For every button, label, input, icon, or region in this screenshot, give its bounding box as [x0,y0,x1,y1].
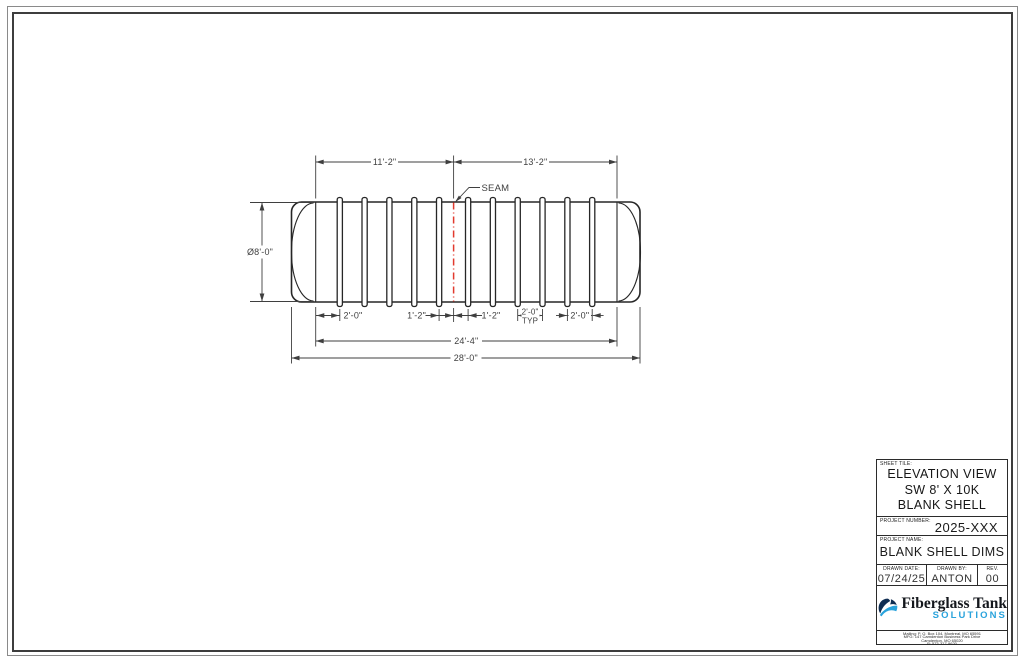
address-line-4: P: 573-317-9620 [877,642,1007,645]
drawn-by-cell: DRAWN BY: ANTON [927,565,978,585]
sheet-title-line-1: ELEVATION VIEW [877,467,1007,483]
sheet-title-section: SHEET TILE: ELEVATION VIEW SW 8' X 10K B… [877,460,1007,517]
rev-value: 00 [986,573,999,585]
dim-top-right: 13'-2" [523,157,547,167]
drawn-date-value: 07/24/25 [878,573,926,585]
rib [437,198,442,307]
rib [337,198,342,307]
rib [412,198,417,307]
company-address: Mailing: P. O. Box 104, Montreal, MO 655… [877,631,1007,645]
dim-seam-right: 1'-2" [482,311,501,321]
rib [540,198,545,307]
title-block: SHEET TILE: ELEVATION VIEW SW 8' X 10K B… [876,459,1008,645]
project-number-section: PROJECT NUMBER: 2025-XXX [877,517,1007,536]
sheet-title-label: SHEET TILE: [877,460,1007,467]
tank-ribs [337,198,595,307]
dim-texts: 11'-2" 13'-2" SEAM Ø8'-0" 2'-0" 1'-2" 1'… [247,157,589,363]
project-number-value: 2025-XXX [935,520,998,535]
drawn-date-label: DRAWN DATE: [883,565,920,572]
sheet-title-line-3: BLANK SHELL [877,498,1007,514]
project-name-label: PROJECT NAME: [877,536,1007,543]
rev-cell: REV. 00 [978,565,1007,585]
dim-top-left: 11'-2" [373,157,396,167]
dim-diameter: Ø8'-0" [247,247,273,257]
logo-company-name: Fiberglass Tank [901,596,1007,611]
company-logo: Fiberglass Tank SOLUTIONS [877,586,1007,631]
rib [590,198,595,307]
dimensions [250,156,640,364]
sheet-title-line-2: SW 8' X 10K [877,483,1007,499]
rib [490,198,495,307]
rib [362,198,367,307]
right-head-arc [619,203,641,301]
rev-label: REV. [986,565,998,572]
fiberglass-tank-logo-icon [877,597,898,619]
rib [466,198,471,307]
rib [387,198,392,307]
drawing-sheet: 11'-2" 13'-2" SEAM Ø8'-0" 2'-0" 1'-2" 1'… [0,0,1024,663]
dim-rib-spacing: 2'-0" [522,308,539,317]
dim-seam-left: 1'-2" [407,311,426,321]
left-head-arc [292,203,314,301]
seam-label: SEAM [482,183,510,194]
project-name-section: PROJECT NAME: BLANK SHELL DIMS [877,536,1007,565]
drawn-by-label: DRAWN BY: [937,565,967,572]
logo-company-sub: SOLUTIONS [901,611,1007,621]
drawn-date-cell: DRAWN DATE: 07/24/25 [877,565,927,585]
project-name-value: BLANK SHELL DIMS [877,545,1007,559]
drawn-by-value: ANTON [931,573,972,585]
tank-elevation-drawing: 11'-2" 13'-2" SEAM Ø8'-0" 2'-0" 1'-2" 1'… [0,0,1024,663]
rib [515,198,520,307]
dim-overall-length: 28'-0" [454,353,478,363]
dim-rib-spacing-typ: TYP [522,317,538,326]
dim-shell-length: 24'-4" [454,336,478,346]
rib [565,198,570,307]
dim-end-rib-left: 2'-0" [344,311,363,321]
drawn-info-row: DRAWN DATE: 07/24/25 DRAWN BY: ANTON REV… [877,565,1007,586]
dim-end-rib-right: 2'-0" [570,311,589,321]
